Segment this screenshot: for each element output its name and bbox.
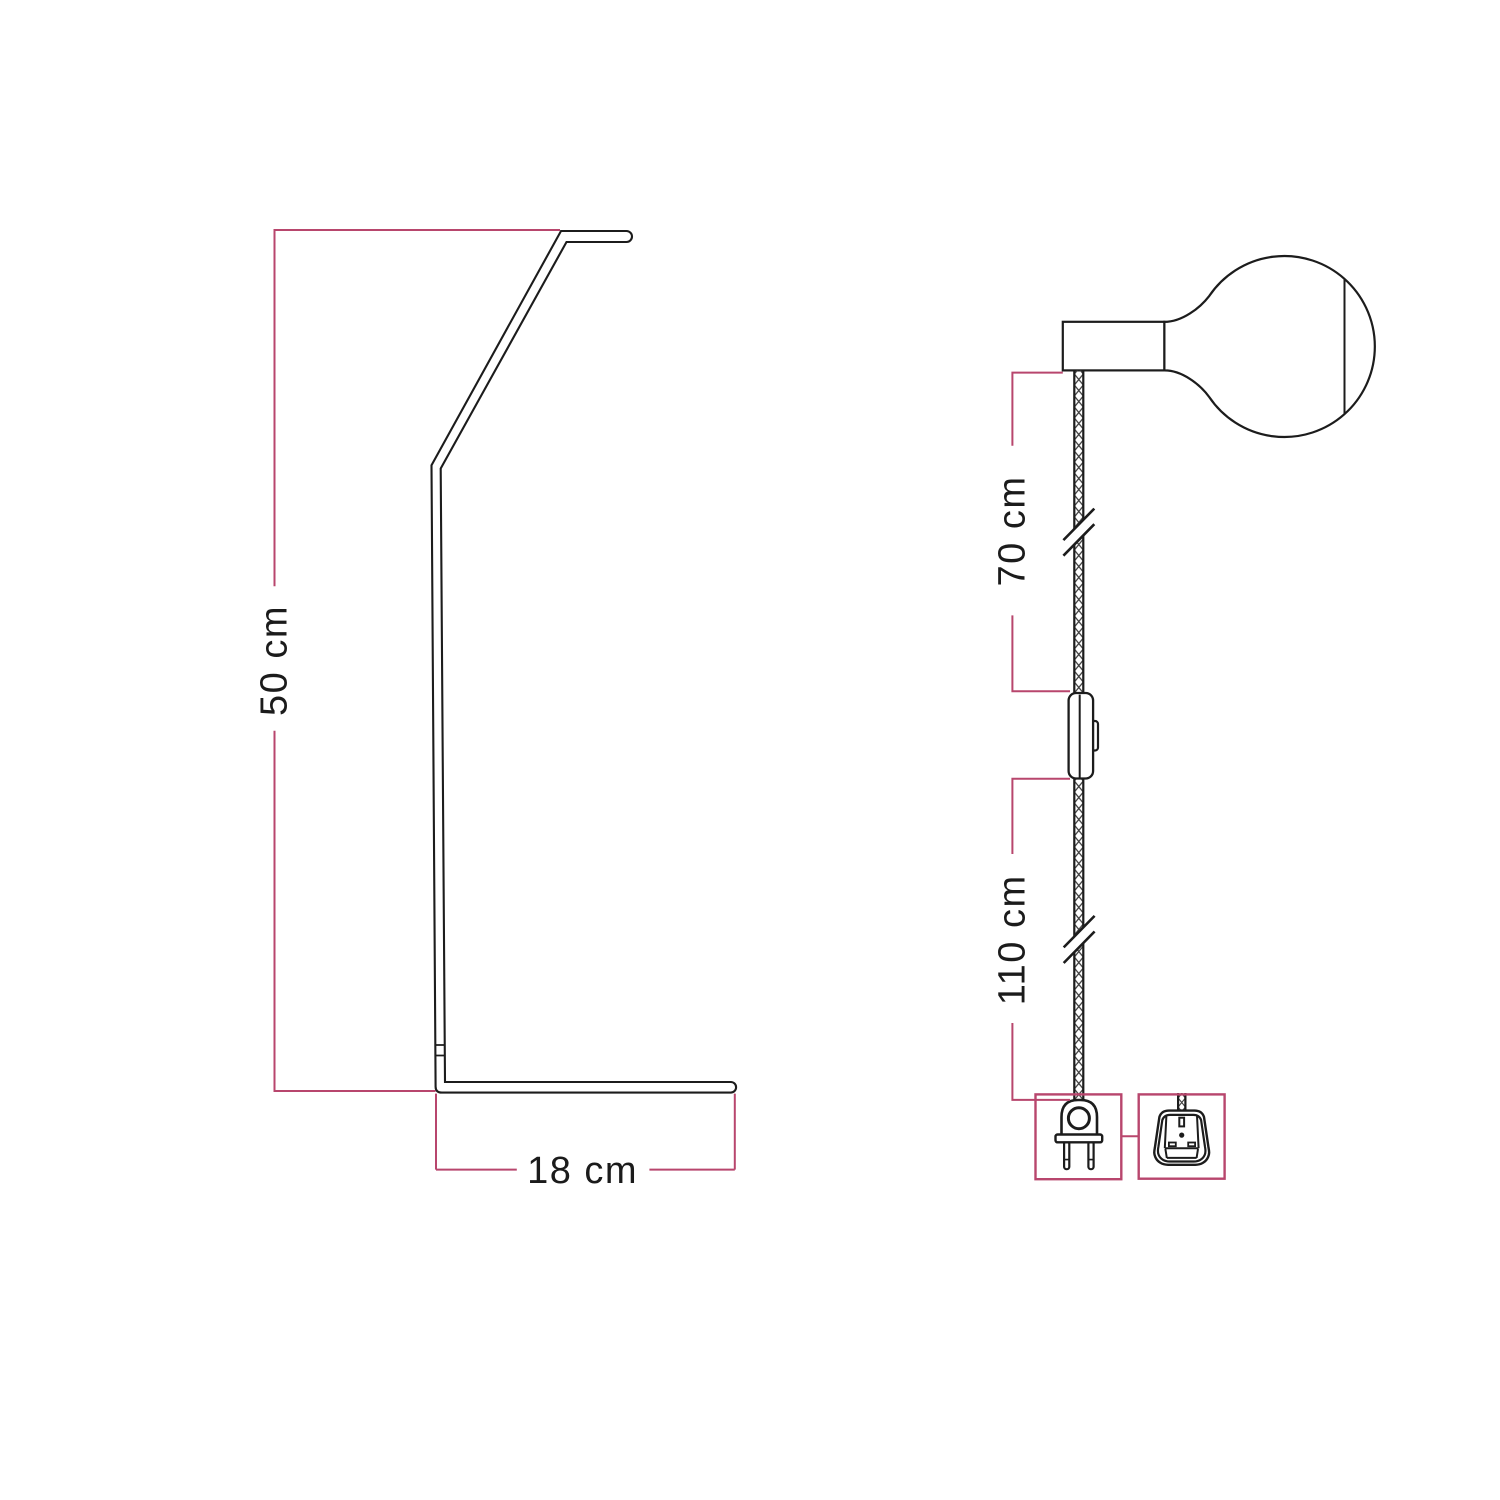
svg-text:18 cm: 18 cm [527, 1150, 638, 1192]
svg-text:110 cm: 110 cm [991, 874, 1033, 1005]
svg-text:50 cm: 50 cm [254, 605, 296, 716]
svg-text:70 cm: 70 cm [991, 476, 1033, 587]
